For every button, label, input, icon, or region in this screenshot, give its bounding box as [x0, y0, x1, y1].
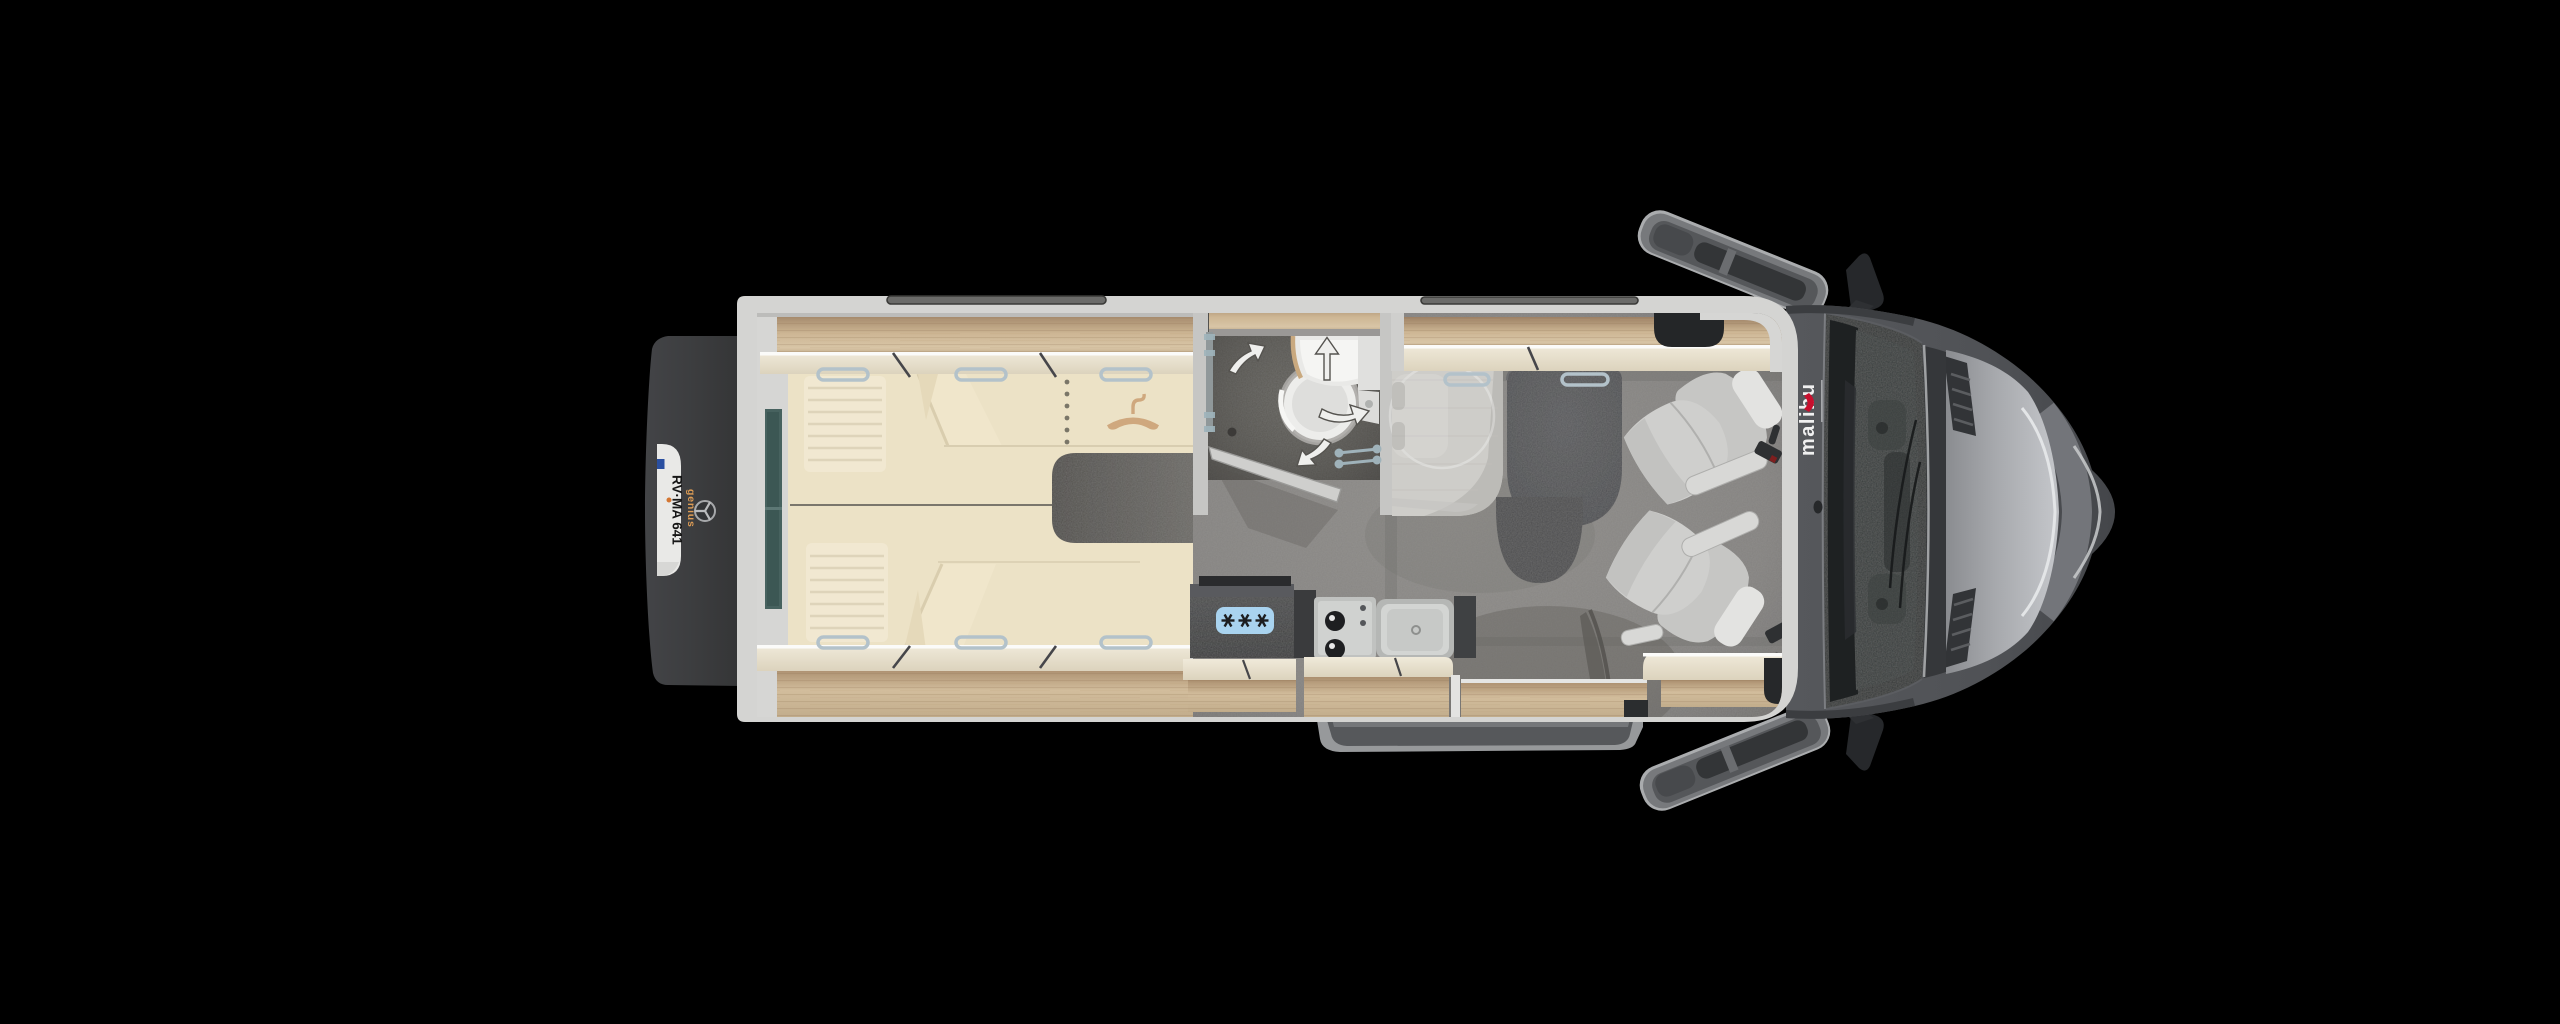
svg-text:RV·MA 641: RV·MA 641 — [670, 475, 685, 545]
svg-text:malibu: malibu — [1797, 383, 1819, 456]
